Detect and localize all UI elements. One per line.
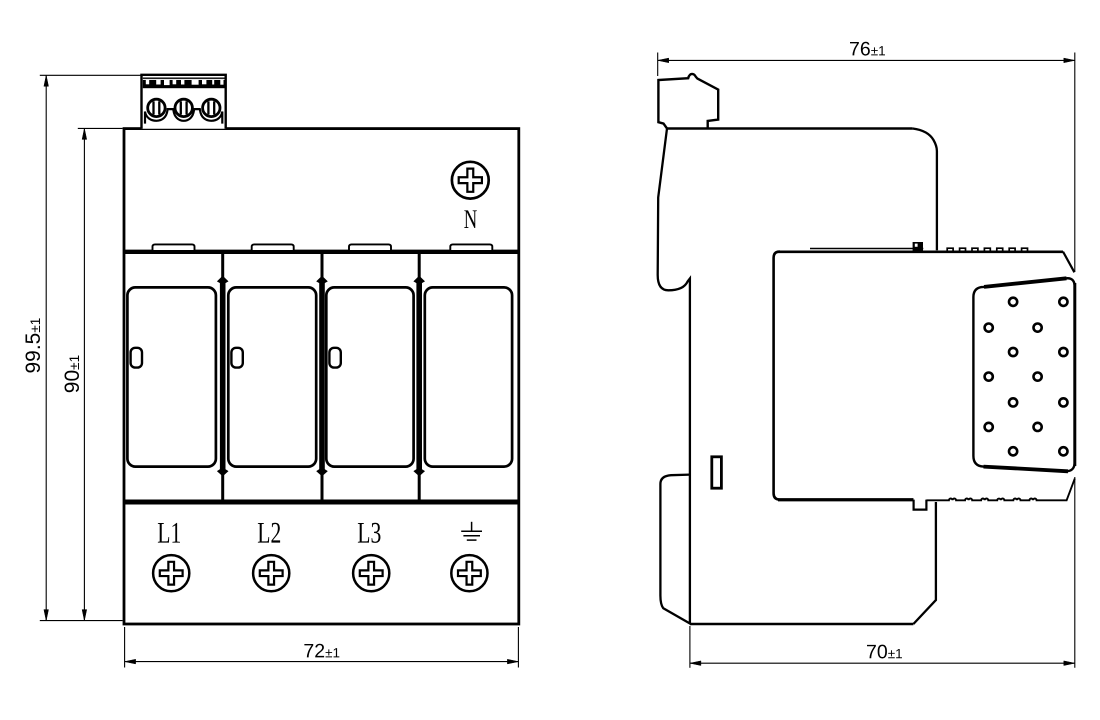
svg-text:L2: L2: [257, 517, 281, 550]
svg-text:N: N: [464, 204, 478, 234]
svg-text:L1: L1: [157, 517, 181, 550]
svg-text:L3: L3: [357, 517, 381, 550]
